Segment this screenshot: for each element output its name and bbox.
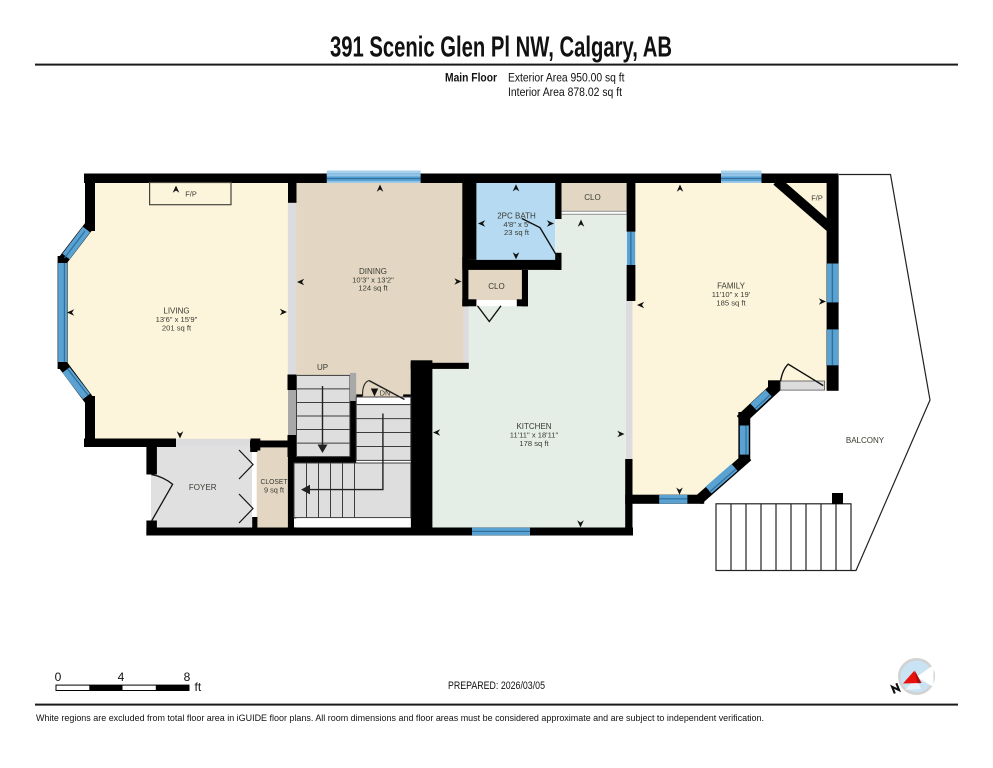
svg-text:185 sq ft: 185 sq ft (716, 298, 746, 307)
svg-text:8: 8 (184, 670, 191, 684)
svg-text:124 sq ft: 124 sq ft (358, 284, 388, 293)
svg-text:0: 0 (55, 670, 62, 684)
svg-text:ft: ft (195, 680, 202, 694)
svg-text:201 sq ft: 201 sq ft (162, 324, 192, 333)
svg-text:391 Scenic Glen Pl NW, Calgary: 391 Scenic Glen Pl NW, Calgary, AB (330, 32, 672, 64)
svg-text:Exterior Area 950.00 sq ft: Exterior Area 950.00 sq ft (508, 71, 625, 85)
svg-text:4: 4 (118, 670, 125, 684)
svg-text:23 sq ft: 23 sq ft (504, 228, 530, 237)
svg-text:DN: DN (380, 388, 391, 397)
svg-text:CLO: CLO (584, 193, 600, 202)
svg-text:9 sq ft: 9 sq ft (264, 486, 284, 495)
svg-text:Main Floor: Main Floor (445, 71, 497, 85)
svg-text:F/P: F/P (811, 194, 823, 203)
svg-text:PREPARED: 2026/03/05: PREPARED: 2026/03/05 (448, 680, 545, 692)
svg-text:F/P: F/P (185, 190, 197, 199)
svg-text:BALCONY: BALCONY (846, 436, 885, 445)
svg-text:FOYER: FOYER (189, 483, 217, 492)
svg-text:UP: UP (317, 363, 328, 372)
svg-text:CLO: CLO (488, 282, 504, 291)
svg-text:Interior Area 878.02 sq ft: Interior Area 878.02 sq ft (508, 85, 622, 99)
svg-text:White regions are excluded fro: White regions are excluded from total fl… (36, 713, 764, 724)
svg-text:178 sq ft: 178 sq ft (519, 439, 549, 448)
